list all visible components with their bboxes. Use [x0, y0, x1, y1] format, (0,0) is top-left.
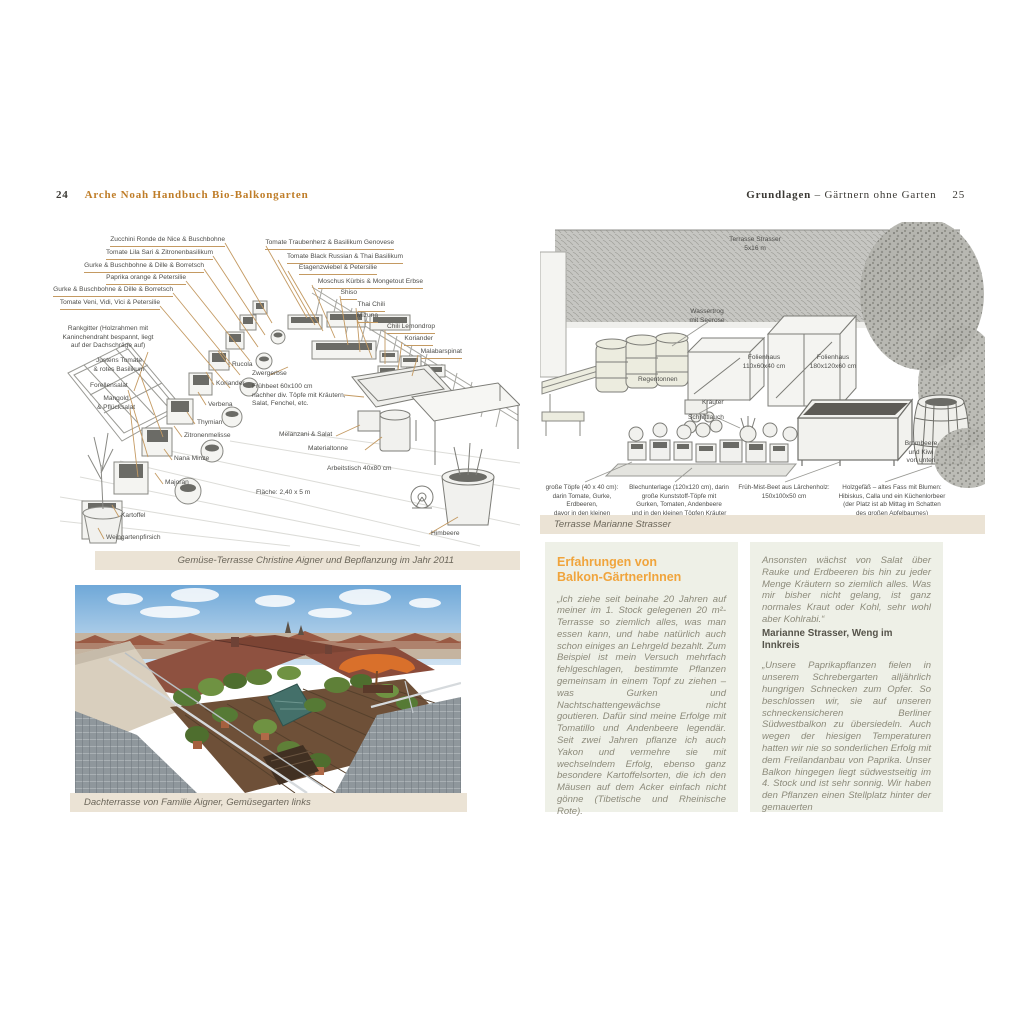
plant-label: Thai Chili — [358, 301, 385, 312]
plant-label: Arbeitstisch 40x80 cm — [327, 465, 392, 474]
plant-label: Majoran — [165, 479, 189, 488]
object-label: Regentonnen — [638, 376, 678, 385]
plant-label: Frühbeet 60x100 cm nachher div. Töpfe mi… — [252, 383, 364, 409]
plant-label: Gurke & Buschbohne & Dille & Borretsch — [53, 286, 173, 297]
right-illustration-caption: Terrasse Marianne Strasser — [540, 515, 985, 534]
plant-label: Etagenzwiebel & Petersilie — [299, 264, 377, 275]
plant-label: Paprika orange & Petersilie — [106, 274, 186, 285]
object-label: Schnittlauch — [688, 414, 724, 423]
object-label: Folienhaus 180x120x60 cm — [798, 354, 868, 371]
illustration-caption: Gemüse-Terrasse Christine Aigner und Bep… — [95, 551, 520, 570]
section-title: Grundlagen — [746, 189, 811, 201]
page-number-right: 25 — [952, 189, 965, 201]
plant-label: Kartoffel — [121, 512, 145, 521]
plant-label: Thymian — [197, 419, 222, 428]
plant-label: Himbeere — [431, 530, 460, 539]
footnote-label: Früh-Mist-Beet aus Lärchenholz: 150x100x… — [736, 484, 832, 501]
plant-label: Melanzani & Salat — [279, 431, 332, 440]
footnote-label: Holzgefäß – altes Fass mit Blumen: Hibis… — [828, 484, 956, 518]
object-label: Kräuter — [702, 399, 724, 408]
book-title: Arche Noah Handbuch Bio-Balkongarten — [85, 189, 309, 201]
experience-heading: Erfahrungen von Balkon-GärtnerInnen — [557, 555, 726, 586]
object-label: Wassertrog mit Seerose — [675, 308, 739, 325]
plant-label: Verbena — [208, 401, 233, 410]
plant-label: Malabarspinat — [421, 348, 462, 359]
plant-label: Moschus Kürbis & Mongetout Erbse — [318, 278, 423, 289]
plant-label: Nana Minze — [174, 455, 209, 464]
experience-box-left: Erfahrungen von Balkon-GärtnerInnen „Ich… — [545, 542, 738, 812]
chapter-title: – Gärtnern ohne Garten — [811, 189, 936, 201]
photo-caption: Dachterrasse von Familie Aigner, Gemüseg… — [70, 793, 467, 812]
area-label: Fläche: 2,40 x 5 m — [256, 489, 310, 498]
page-number-left: 24 — [56, 189, 69, 201]
plant-label: Zucchini Ronde de Nice & Buschbohne — [110, 236, 225, 247]
plant-label: Zitronenmelisse — [184, 432, 231, 441]
strasser-terrace-illustration: Terrasse Strasser 5x16 m Wassertrog mit … — [540, 222, 985, 514]
right-page-header: Grundlagen – Gärtnern ohne Garten25 — [746, 189, 965, 201]
terrace-size-label: Terrasse Strasser 5x16 m — [715, 236, 795, 253]
plant-label: Tomate Black Russian & Thai Basilikum — [287, 253, 403, 264]
plant-label: Mangold & Pflücksalat — [92, 395, 140, 412]
plant-label: Justens Tomate & rotes Basilikum — [88, 357, 150, 374]
left-page-header: 24Arche Noah Handbuch Bio-Balkongarten — [56, 189, 309, 201]
roof-terrace-photo — [75, 585, 461, 793]
plant-label: Tomate Veni, Vidi, Vici & Petersilie — [60, 299, 160, 310]
quote-attribution: Marianne Strasser, Weng im Innkreis — [762, 628, 931, 652]
object-label: Brombeere und Kiwi von unten — [892, 440, 950, 466]
roof-terrace-photo-image — [75, 585, 461, 793]
plant-label: Gurke & Buschbohne & Dille & Borretsch — [84, 262, 204, 273]
object-label: Folienhaus 110x60x40 cm — [734, 354, 794, 371]
experience-box-right: Ansonsten wächst von Salat über Rauke un… — [750, 542, 943, 812]
plant-label: Rucola — [232, 361, 253, 370]
plant-label: Rankgitter (Holzrahmen mit Kaninchendrah… — [60, 325, 156, 351]
plant-label: Koriander — [404, 335, 433, 346]
gardener-quote: „Ich ziehe seit beinahe 20 Jahren auf me… — [557, 594, 726, 818]
plant-label: Tomate Lila Sari & Zitronenbasilikum — [106, 249, 213, 260]
vegetable-terrace-illustration: Zucchini Ronde de Nice & Buschbohne Toma… — [60, 225, 520, 547]
plant-label: Materialtonne — [308, 445, 348, 454]
plant-label: Mizuna — [357, 312, 378, 323]
plant-label: Koriander — [216, 380, 245, 389]
plant-label: Forellensalat — [90, 382, 128, 391]
plant-label: Tomate Traubenherz & Basilikum Genovese — [265, 239, 394, 250]
plant-label: Weingartenpfirsich — [106, 534, 161, 543]
gardener-quote-continued: Ansonsten wächst von Salat über Rauke un… — [762, 555, 931, 626]
plant-label: Chili Lemondrop — [387, 323, 435, 334]
plant-label: Zwergerbse — [252, 370, 287, 379]
plant-label: Shiso — [341, 289, 358, 300]
gardener-quote-2: „Unsere Paprikapflanzen fielen in unsere… — [762, 660, 931, 813]
